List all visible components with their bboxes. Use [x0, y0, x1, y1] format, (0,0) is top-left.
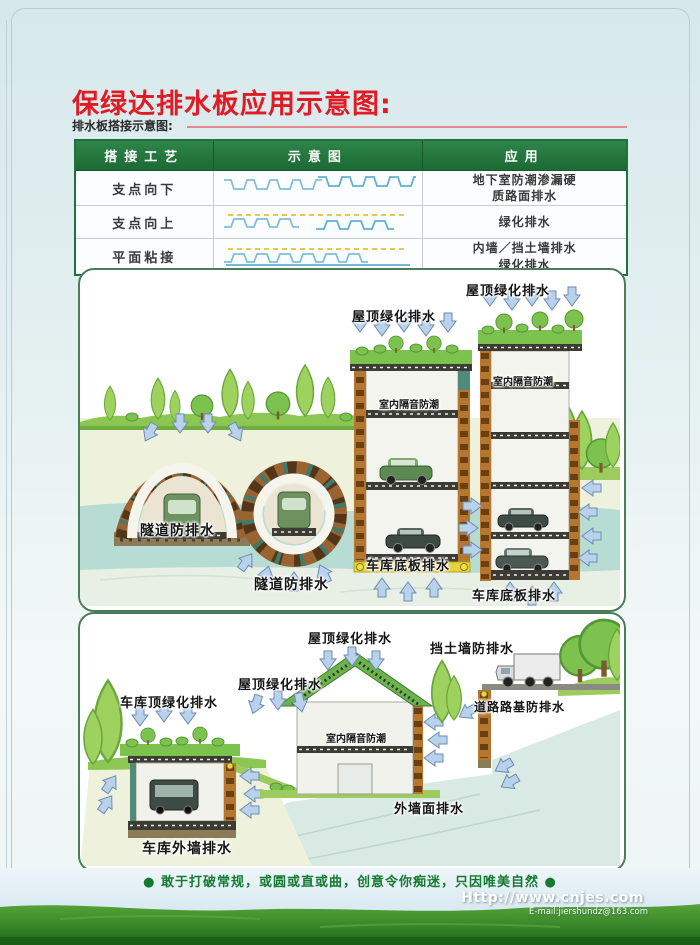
drainage-board-points-up-icon: [220, 207, 416, 233]
application-cell: 地下室防潮渗漏硬 质路面排水: [423, 171, 627, 206]
email-address: E-mail:jiershundz@163.com: [529, 907, 648, 917]
label-retaining-wall-drainage: 挡土墙防排水: [430, 638, 514, 657]
col-header-diagram: 示意图: [213, 140, 423, 171]
label-garage-floor-drainage: 车库底板排水: [472, 585, 556, 604]
page-edge-line: [6, 20, 7, 900]
label-indoor-soundproof-dampproof: 室内隔音防潮: [493, 373, 553, 388]
label-roof-greening-drainage: 屋顶绿化排水: [308, 628, 392, 647]
underground-garage: [120, 727, 240, 838]
label-roof-greening-drainage: 屋顶绿化排水: [238, 674, 322, 693]
website-url: Http://www.cnjes.com: [461, 890, 644, 906]
application-panel-underground: 屋顶绿化排水 屋顶绿化排水 室内隔音防潮 室内隔音防潮 隧道防排水 隧道防排水 …: [78, 268, 626, 612]
label-roadbed-drainage: 道路路基防排水: [474, 698, 565, 715]
poster-page: 保绿达排水板应用示意图: 排水板搭接示意图: 搭接工艺 示意图 应用 支点向下 …: [0, 0, 700, 945]
diagram-cell: [213, 171, 423, 206]
label-garage-outer-wall-drainage: 车库外墙排水: [142, 838, 232, 858]
page-title: 保绿达排水板应用示意图:: [72, 82, 392, 121]
label-tunnel-drainage: 隧道防排水: [254, 574, 329, 594]
slogan-text: ● 敢于打破常规，或圆或直或曲，创意令你痴迷，只因唯美自然 ●: [0, 871, 700, 890]
col-header-process: 搭接工艺: [75, 140, 213, 171]
process-cell: 支点向下: [75, 171, 213, 206]
label-roof-greening-drainage: 屋顶绿化排水: [466, 280, 550, 299]
table-header-row: 搭接工艺 示意图 应用: [75, 140, 627, 171]
drainage-board-points-down-icon: [220, 173, 416, 199]
drainage-board-flat-bond-icon: [220, 242, 416, 268]
label-indoor-soundproof-dampproof: 室内隔音防潮: [326, 730, 386, 745]
table-row: 支点向上 绿化排水: [75, 206, 627, 239]
label-outer-wall-drainage: 外墙面排水: [394, 798, 464, 817]
label-roof-greening-drainage: 屋顶绿化排水: [352, 306, 436, 325]
application-panel-slope: 屋顶绿化排水 挡土墙防排水 屋顶绿化排水 车库顶绿化排水 道路路基防排水 室内隔…: [78, 612, 626, 872]
subtitle-rule: [187, 126, 627, 128]
truck: [496, 654, 560, 687]
garage-building-1: [350, 336, 472, 572]
diagram-cell: [213, 206, 423, 239]
label-indoor-soundproof-dampproof: 室内隔音防潮: [379, 396, 439, 411]
process-cell: 支点向上: [75, 206, 213, 239]
label-garage-roof-greening-drainage: 车库顶绿化排水: [120, 692, 218, 711]
col-header-application: 应用: [423, 140, 627, 171]
section-subtitle: 排水板搭接示意图:: [72, 117, 173, 134]
label-garage-floor-drainage: 车库底板排水: [366, 555, 450, 574]
table-row: 支点向下 地下室防潮渗漏硬 质路面排水: [75, 171, 627, 206]
application-cell: 绿化排水: [423, 206, 627, 239]
round-tunnel: [248, 468, 340, 560]
lap-joint-table: 搭接工艺 示意图 应用 支点向下 地下室防潮渗漏硬 质路面排水 支点向上: [74, 139, 628, 276]
garage-building-2: [478, 310, 583, 581]
underground-scene-illustration: [80, 270, 620, 606]
label-tunnel-drainage: 隧道防排水: [140, 520, 215, 540]
